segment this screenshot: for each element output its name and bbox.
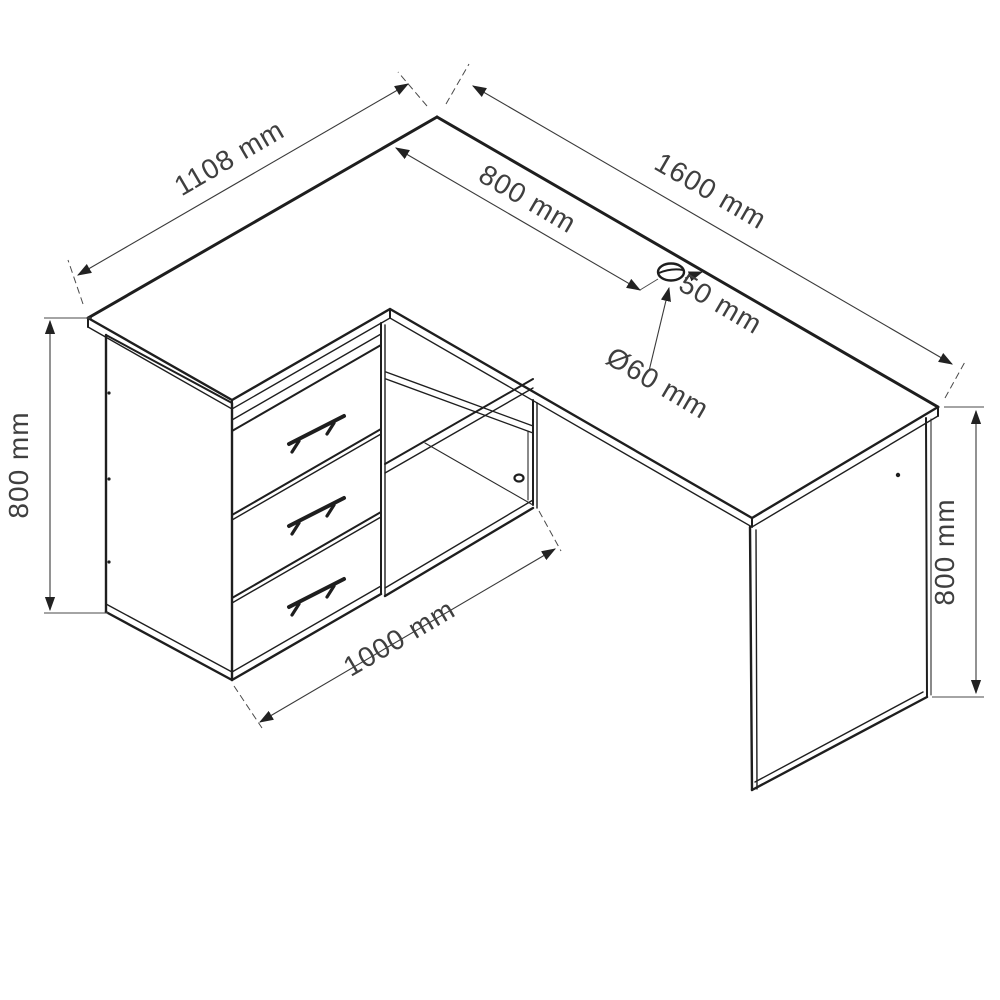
left-side-panel xyxy=(106,335,232,680)
cam-lock-icon xyxy=(515,475,524,482)
dimension-label: Ø60 mm xyxy=(601,341,715,425)
drawer-divider-2-inner xyxy=(232,517,381,603)
right-panel-bottom-edge-inner xyxy=(755,692,923,782)
dim-cabinet-height: 800 mm xyxy=(3,318,108,613)
cable-grommet xyxy=(658,264,684,281)
left-panel-bottom-edge xyxy=(106,612,232,680)
cam-fitting-dot xyxy=(107,560,110,563)
shelf-bottom-edge xyxy=(385,508,533,596)
corner-desk-technical-drawing: 1108 mm 1600 mm 800 mm 50 mm Ø60 mm 800 … xyxy=(0,0,1000,1000)
shelf-back-top-rail xyxy=(386,372,533,433)
cam-fitting-dot xyxy=(107,391,110,394)
right-panel-bottom-edge xyxy=(752,697,927,790)
dimension-label: 1108 mm xyxy=(169,114,290,202)
left-panel-plinth-line xyxy=(106,604,232,672)
dimension-label: 1600 mm xyxy=(649,146,772,235)
desktop-front-edges xyxy=(88,309,938,518)
drawer-divider-2 xyxy=(232,512,381,598)
dim-desk-length: 1600 mm xyxy=(446,64,966,398)
cabinet-top-rail xyxy=(232,334,381,420)
cam-fitting-dot xyxy=(107,477,110,480)
dimension-label: 800 mm xyxy=(929,498,960,605)
drawer-divider-1-inner xyxy=(232,434,381,520)
left-panel-top-edge xyxy=(106,335,232,403)
right-panel-front-edge-inner xyxy=(756,530,757,789)
dimension-label: 800 mm xyxy=(3,411,34,518)
drawer-handle xyxy=(289,498,344,534)
shelf-board xyxy=(385,379,533,473)
dim-return-length: 1108 mm xyxy=(68,72,427,304)
cam-fitting-dot xyxy=(896,473,900,477)
shelf-compartment xyxy=(385,372,537,596)
desktop-underside-edges xyxy=(88,318,938,527)
drawer-divider-1 xyxy=(232,429,381,515)
drawer-handle xyxy=(289,416,344,452)
dim-grommet-diameter: Ø60 mm xyxy=(601,288,715,425)
technical-drawing-canvas: 1108 mm 1600 mm 800 mm 50 mm Ø60 mm 800 … xyxy=(0,0,1000,1000)
right-panel-front-edge xyxy=(750,527,752,790)
dimension-label: 1000 mm xyxy=(338,593,460,682)
dim-desk-height: 800 mm xyxy=(929,407,984,697)
right-panel-back-edge xyxy=(926,418,927,697)
dimension-label: 50 mm xyxy=(674,268,768,340)
dim-grommet-back-offset: 50 mm xyxy=(674,268,768,340)
drawer-unit xyxy=(232,323,385,680)
dim-cabinet-width: 1000 mm xyxy=(234,511,561,728)
drawer-handle xyxy=(289,579,344,615)
